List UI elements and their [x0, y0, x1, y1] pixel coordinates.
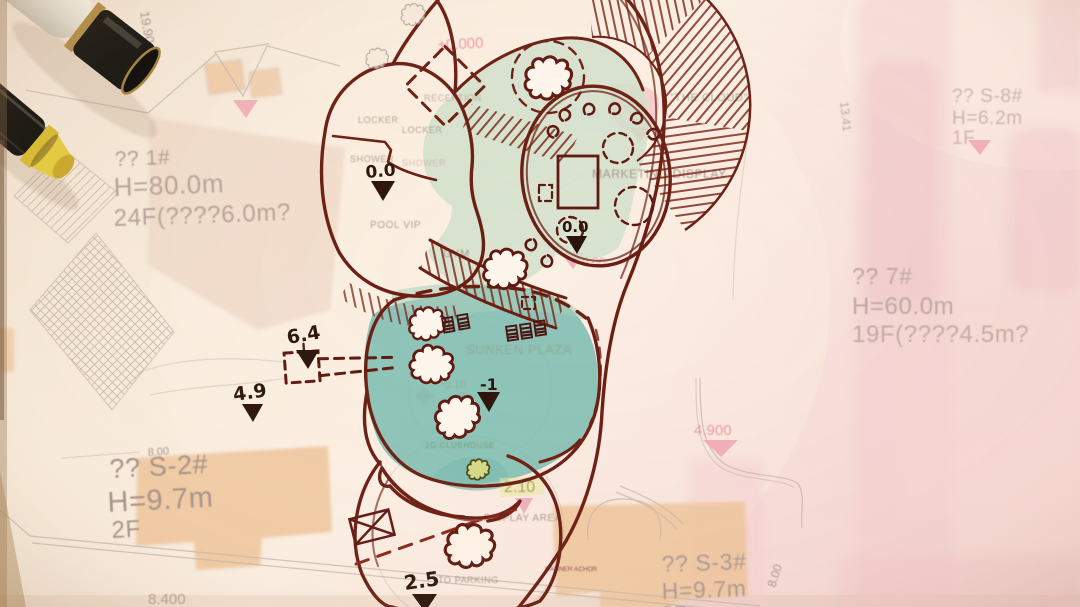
photo-of-sketch-plan: ?? 1# H=80.0m 24F(????6.0m? ?? S-8# H=6.…: [0, 0, 1080, 607]
photo-vignette: [0, 0, 1080, 607]
